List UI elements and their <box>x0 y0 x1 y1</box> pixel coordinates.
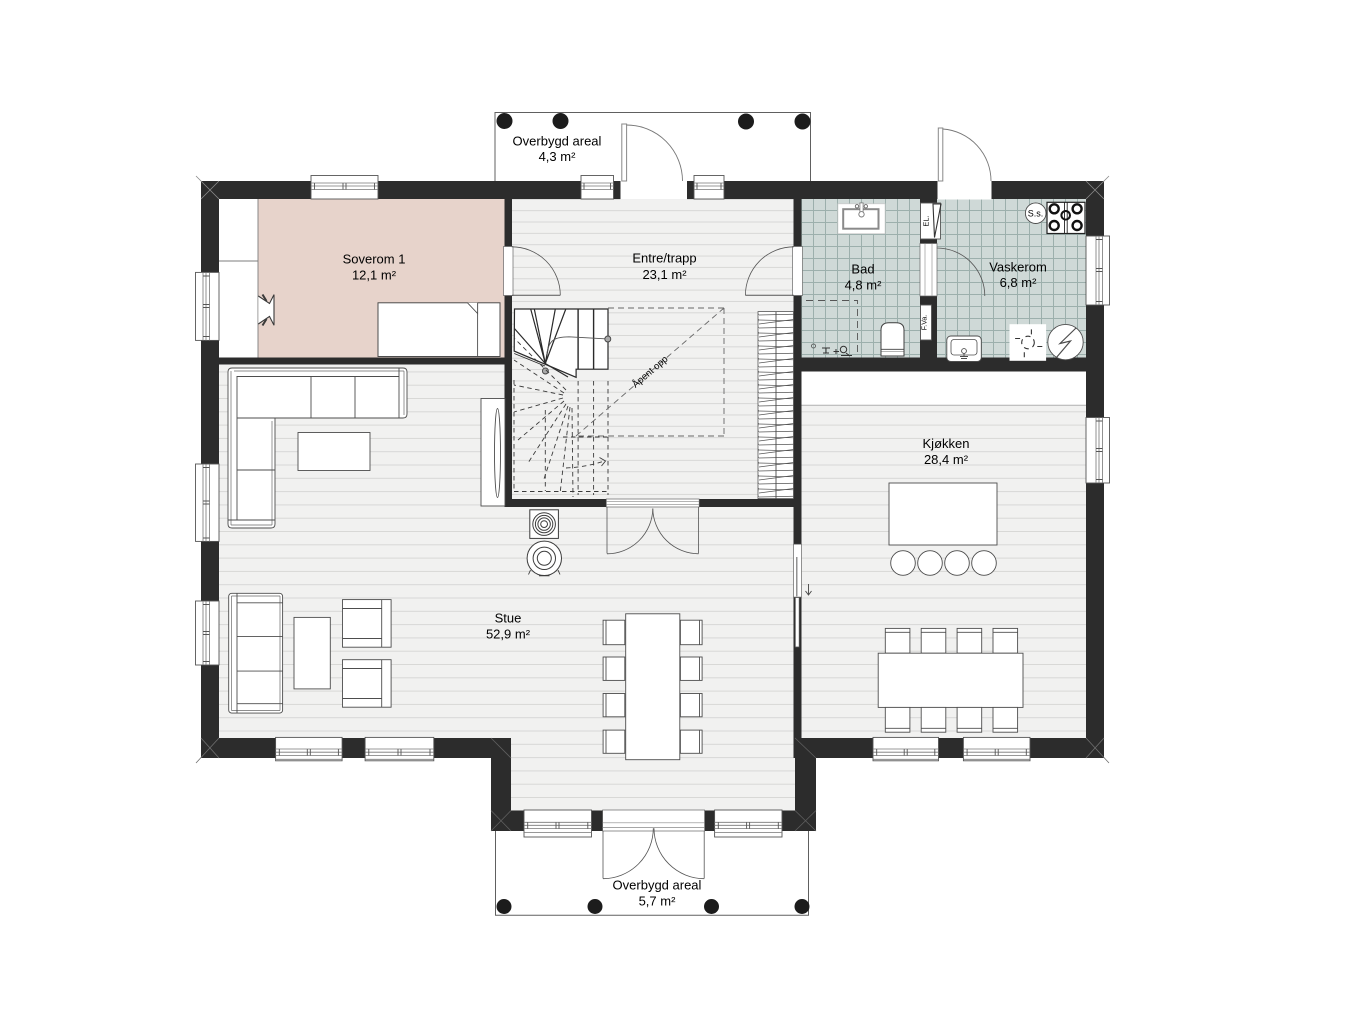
svg-text:Overbygd areal: Overbygd areal <box>513 133 602 148</box>
svg-text:Stue: Stue <box>495 611 522 626</box>
svg-text:Soverom 1: Soverom 1 <box>343 251 406 266</box>
svg-text:28,4 m²: 28,4 m² <box>924 452 969 467</box>
svg-text:S.s.: S.s. <box>1028 209 1044 219</box>
svg-text:Bad: Bad <box>851 262 874 277</box>
svg-text:12,1 m²: 12,1 m² <box>352 268 397 283</box>
svg-text:F.Va.: F.Va. <box>922 315 929 330</box>
svg-text:Kjøkken: Kjøkken <box>923 436 970 451</box>
svg-text:Entre/trapp: Entre/trapp <box>632 251 696 266</box>
svg-text:52,9 m²: 52,9 m² <box>486 626 531 641</box>
svg-text:6,8 m²: 6,8 m² <box>1000 275 1038 290</box>
svg-text:5,7 m²: 5,7 m² <box>639 893 677 908</box>
svg-text:23,1 m²: 23,1 m² <box>642 267 687 282</box>
svg-text:4,3 m²: 4,3 m² <box>539 149 577 164</box>
svg-text:EL.: EL. <box>922 215 931 226</box>
svg-text:4,8 m²: 4,8 m² <box>845 277 883 292</box>
svg-text:Overbygd areal: Overbygd areal <box>613 878 702 893</box>
svg-text:Vaskerom: Vaskerom <box>989 259 1047 274</box>
